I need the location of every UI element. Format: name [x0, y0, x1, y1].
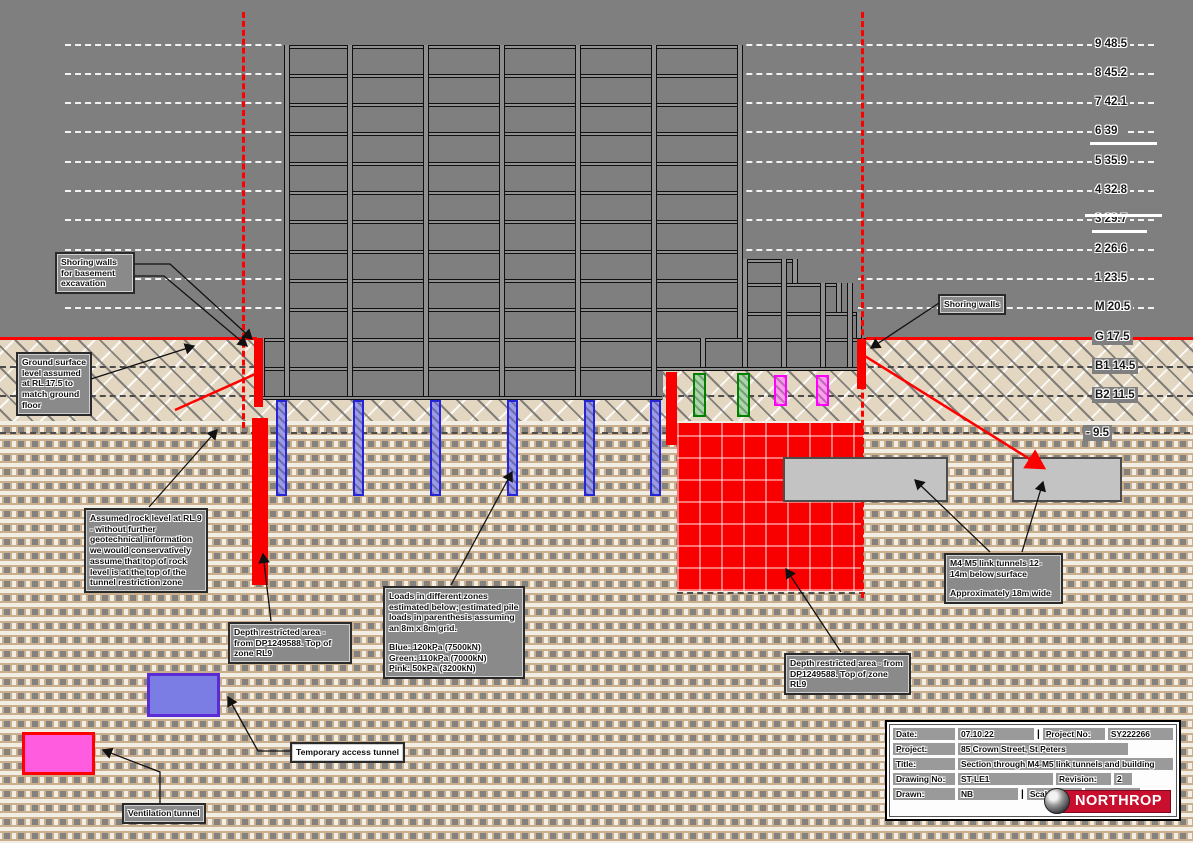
note-loads-green: Green: 110kPa (7000kN)	[389, 653, 519, 664]
basement-column	[575, 338, 581, 396]
drawn-label: Drawn:	[893, 788, 955, 800]
podium-column	[742, 259, 748, 338]
cell-divider: |	[1021, 789, 1024, 800]
drawing-no-value: ST-LE1	[958, 773, 1053, 785]
podium-slab	[742, 312, 859, 316]
project-label: Project:	[893, 743, 955, 755]
project-value: 85 Crown Street, St Peters	[958, 743, 1128, 755]
note-ventilation: Ventilation tunnel	[122, 803, 206, 824]
podium-step	[792, 259, 798, 283]
basement-column-right	[781, 338, 787, 367]
tower-column	[499, 45, 505, 338]
northrop-logo: NORTHROP	[1044, 788, 1171, 814]
basement-column-right	[820, 338, 826, 367]
m4-tunnel	[783, 457, 948, 502]
level-label: 5 35.9	[1092, 153, 1130, 169]
title-label: Title:	[893, 758, 955, 770]
tower-column	[423, 45, 429, 338]
date-value: 07.10.22	[958, 728, 1034, 740]
basement-column-right	[742, 338, 748, 367]
note-temporary-access: Temporary access tunnel	[290, 742, 405, 763]
boundary-dashed-left	[242, 12, 245, 428]
level-label: M 20.5	[1092, 299, 1133, 315]
ventilation-tunnel-shape	[22, 732, 95, 775]
podium-column	[820, 283, 826, 338]
title-block-row: Title: Section through M4-M5 link tunnel…	[893, 757, 1173, 771]
note-m4m5: M4-M5 link tunnels 12-14m below surface …	[944, 553, 1063, 604]
note-shoring-walls: Shoring walls	[938, 294, 1006, 315]
level-label: 2 26.6	[1092, 241, 1130, 257]
level3-underline	[1092, 230, 1147, 233]
title-value: Section through M4-M5 link tunnels and b…	[958, 758, 1173, 770]
depth-restricted-zone	[677, 423, 863, 591]
pile-green	[737, 373, 750, 417]
pile-blue	[507, 400, 518, 496]
title-block-row: Date: 07.10.22 | Project No: SY222266	[893, 727, 1173, 741]
basement-column	[651, 338, 657, 396]
b2-slab	[257, 396, 662, 400]
basement-column	[284, 338, 290, 396]
level-dashed-tail	[1128, 102, 1154, 104]
basement-column	[347, 338, 353, 396]
boundary-dashed-right	[861, 12, 864, 598]
level-dashed-tail	[1128, 131, 1154, 133]
level-dashed-tail	[1128, 219, 1154, 221]
note-m4m5-line1: M4-M5 link tunnels 12-14m below surface	[950, 558, 1057, 579]
level-dashed-tail	[1128, 73, 1154, 75]
pile-blue	[276, 400, 287, 496]
revision-value: 2	[1114, 773, 1132, 785]
tower-column	[284, 45, 290, 338]
rock-dashed-line	[0, 432, 1190, 434]
level-dashed-tail	[1128, 190, 1154, 192]
level-dashed-tail	[1128, 249, 1154, 251]
tower-column	[651, 45, 657, 338]
note-shoring-basement: Shoring walls for basement excavation	[55, 252, 135, 294]
note-m4m5-line2: Approximately 18m wide	[950, 588, 1057, 599]
tower-column	[575, 45, 581, 338]
tower-column	[347, 45, 353, 338]
level-label: 4 32.8	[1092, 182, 1130, 198]
level-dashed-tail	[1128, 44, 1154, 46]
level-label: 1 23.5	[1092, 270, 1130, 286]
basement-column-right	[700, 338, 706, 367]
note-loads: Loads in different zones estimated below…	[383, 586, 525, 679]
zone-bottom-line	[677, 592, 865, 594]
pile-green	[693, 373, 706, 417]
shoring-wall-left	[254, 338, 263, 407]
drawing-no-label: Drawing No:	[893, 773, 955, 785]
level-label: B1 14.5	[1092, 358, 1138, 374]
note-loads-pink: Pink: 50kPa (3200kN)	[389, 663, 519, 674]
level6-underline	[1090, 142, 1157, 145]
temporary-access-tunnel-shape	[147, 673, 220, 717]
ground-line-right	[866, 337, 1193, 340]
level-label: B2 11.5	[1092, 387, 1138, 403]
basement-column	[499, 338, 505, 396]
logo-wordmark: NORTHROP	[1060, 790, 1171, 813]
note-depth-restricted-right: Depth restricted area - from DP1249588. …	[784, 653, 911, 695]
podium-step	[836, 283, 842, 312]
note-ground-surface: Ground surface level assumed at RL 17.5 …	[16, 352, 92, 416]
ground-line-left	[0, 337, 257, 340]
m5-tunnel	[1012, 457, 1122, 502]
pile-pink	[774, 375, 787, 406]
revision-label: Revision:	[1056, 773, 1111, 785]
pile-blue	[353, 400, 364, 496]
title-block-row: Drawing No: ST-LE1 Revision: 2	[893, 772, 1173, 786]
project-no-value: SY222266	[1108, 728, 1173, 740]
date-label: Date:	[893, 728, 955, 740]
note-loads-intro: Loads in different zones estimated below…	[389, 591, 519, 634]
title-block: Date: 07.10.22 | Project No: SY222266 Pr…	[885, 720, 1181, 821]
note-depth-restricted-left: Depth restricted area - from DP1249588. …	[228, 622, 352, 664]
level-dashed-tail	[1128, 278, 1154, 280]
section-drawing: 9 48.58 45.27 42.16 395 35.94 32.83 29.7…	[0, 0, 1193, 843]
level-label: 7 42.1	[1092, 94, 1130, 110]
podium-column	[781, 259, 787, 338]
pile-blue	[650, 400, 661, 496]
title-block-row: Project: 85 Crown Street, St Peters	[893, 742, 1173, 756]
deep-red-pile	[252, 418, 268, 585]
restricted-zone-edge	[666, 372, 677, 445]
note-loads-blue: Blue: 120kPa (7500kN)	[389, 642, 519, 653]
pile-pink	[816, 375, 829, 406]
drawn-value: NB	[958, 788, 1018, 800]
level-label: 8 45.2	[1092, 65, 1130, 81]
level-label: G 17.5	[1092, 329, 1133, 345]
pile-blue	[584, 400, 595, 496]
cell-divider: |	[1037, 729, 1040, 740]
level3-overline	[1085, 214, 1162, 217]
level-label: 6 39	[1092, 123, 1120, 139]
podium-column	[847, 283, 853, 360]
basement-column	[423, 338, 429, 396]
pile-blue	[430, 400, 441, 496]
level-dashed-tail	[1128, 161, 1154, 163]
rock-level-label: - 9.5	[1083, 425, 1112, 441]
logo-sphere-icon	[1044, 788, 1070, 814]
project-no-label: Project No:	[1043, 728, 1105, 740]
level-label: 9 48.5	[1092, 36, 1130, 52]
note-assumed-rock: Assumed rock level at RL 9 - without fur…	[84, 508, 208, 593]
